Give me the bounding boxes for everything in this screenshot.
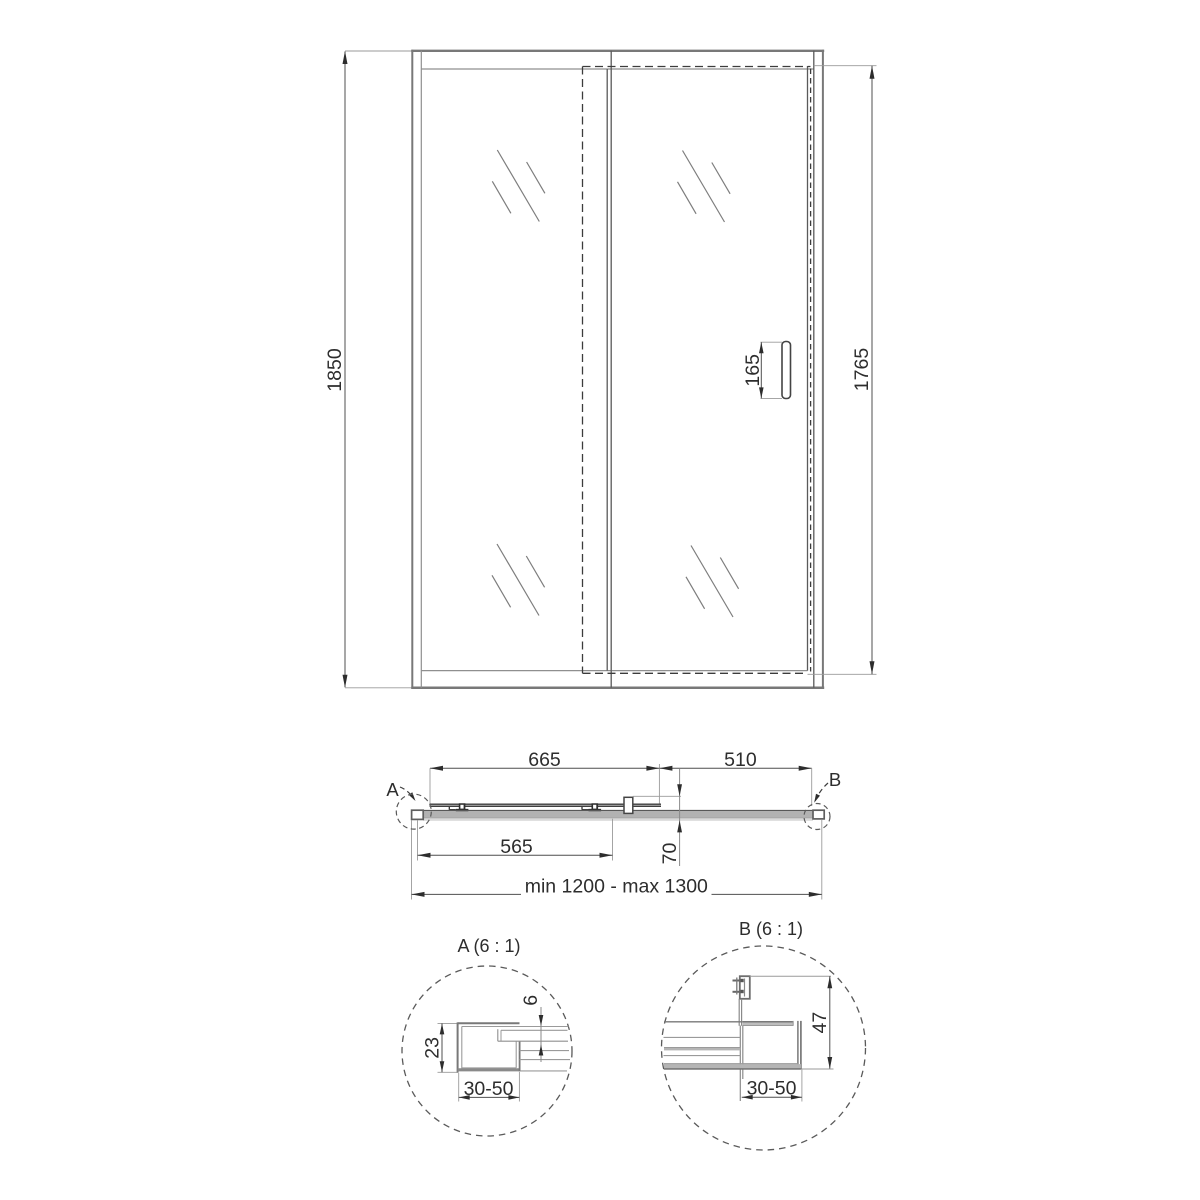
svg-text:165: 165 xyxy=(742,354,764,387)
svg-text:min 1200 - max 1300: min 1200 - max 1300 xyxy=(525,876,708,898)
svg-text:70: 70 xyxy=(659,843,681,865)
svg-text:1765: 1765 xyxy=(851,348,873,392)
svg-text:B: B xyxy=(829,769,841,790)
svg-text:665: 665 xyxy=(528,749,561,771)
svg-text:23: 23 xyxy=(422,1037,444,1059)
svg-text:A (6 : 1): A (6 : 1) xyxy=(457,936,520,956)
svg-text:510: 510 xyxy=(724,749,757,771)
svg-text:30-50: 30-50 xyxy=(464,1078,514,1100)
svg-text:6: 6 xyxy=(520,995,542,1006)
svg-text:47: 47 xyxy=(809,1012,831,1034)
svg-text:A: A xyxy=(386,779,399,800)
svg-text:565: 565 xyxy=(500,836,533,858)
svg-text:B (6 : 1): B (6 : 1) xyxy=(739,919,803,939)
svg-text:30-50: 30-50 xyxy=(747,1078,797,1100)
svg-text:1850: 1850 xyxy=(324,348,346,392)
